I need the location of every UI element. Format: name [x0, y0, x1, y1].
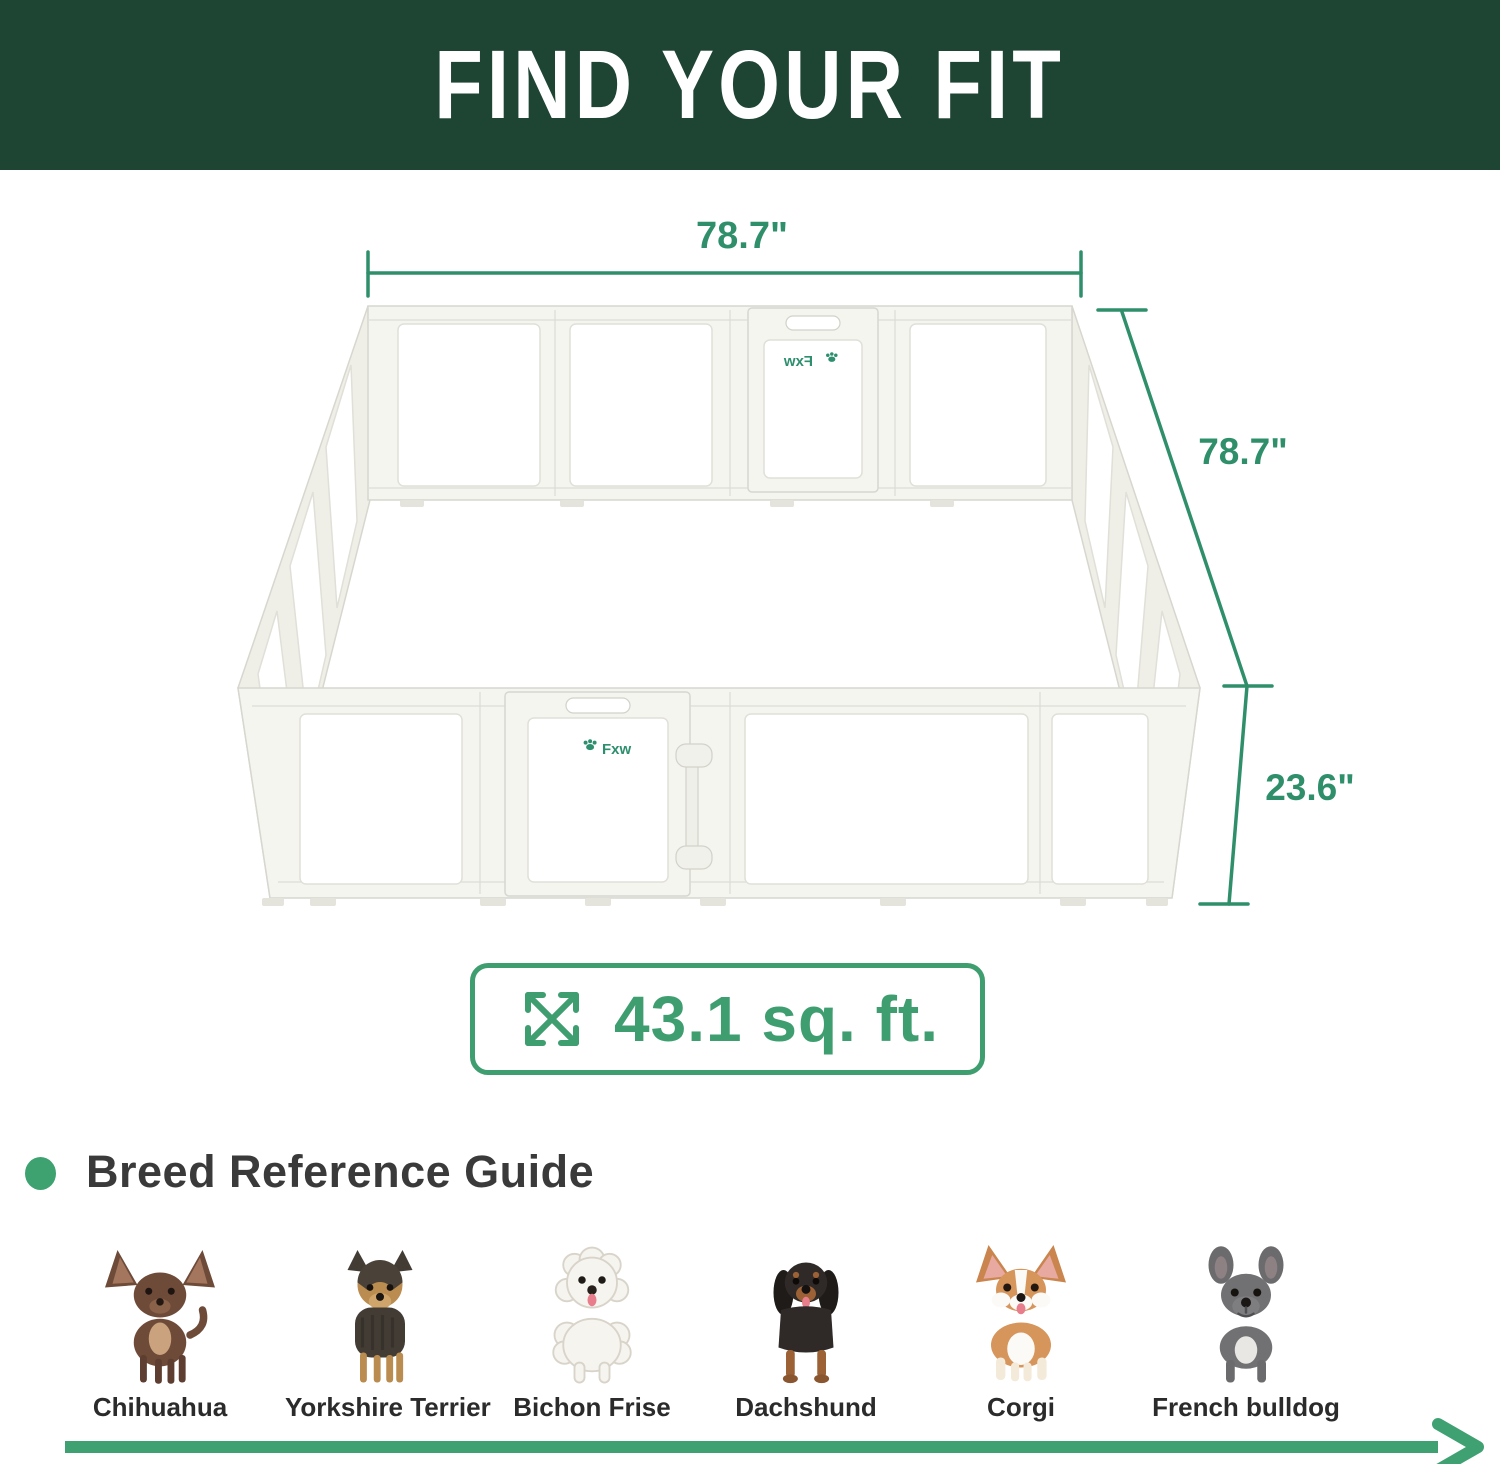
bichon-frise-illustration — [517, 1240, 667, 1390]
front-door-latch-knob-bottom — [676, 846, 712, 869]
area-badge: 43.1 sq. ft. — [470, 963, 985, 1075]
height-label: 23.6" — [1265, 767, 1355, 808]
breed-item-yorkshire-terrier: Yorkshire Terrier — [285, 1240, 475, 1423]
breed-item-bichon-frise: Bichon Frise — [497, 1240, 687, 1423]
breed-label: Bichon Frise — [497, 1392, 687, 1423]
breed-guide-heading: Breed Reference Guide — [86, 1146, 594, 1198]
svg-text:Fxw: Fxw — [783, 353, 813, 370]
back-door-handle-slot — [786, 316, 840, 330]
breed-label: French bulldog — [1151, 1392, 1341, 1423]
breed-item-corgi: Corgi — [926, 1240, 1116, 1423]
breed-label: Dachshund — [711, 1392, 901, 1423]
breed-guide-title: Breed Reference Guide — [86, 1146, 594, 1198]
arrow-head-icon — [1438, 1424, 1478, 1464]
playpen-back-door: Fxw — [748, 308, 878, 492]
french-bulldog-illustration — [1171, 1240, 1321, 1390]
dachshund-illustration — [731, 1240, 881, 1390]
breed-size-arrow — [65, 1424, 1478, 1464]
section-bullet-dot — [25, 1157, 56, 1190]
front-door-latch-bar — [686, 752, 698, 860]
dimension-width: 78.7" — [368, 215, 1081, 296]
dimension-height: 23.6" — [1200, 686, 1355, 904]
breed-label: Corgi — [926, 1392, 1116, 1423]
depth-label: 78.7" — [1198, 431, 1288, 472]
chihuahua-illustration — [85, 1240, 235, 1390]
svg-text:Fxw: Fxw — [602, 741, 632, 758]
width-label: 78.7" — [696, 215, 788, 257]
breed-item-french-bulldog: French bulldog — [1151, 1240, 1341, 1423]
playpen-back-wall: Fxw — [368, 306, 1072, 507]
playpen-front-door: Fxw — [505, 692, 712, 896]
corgi-illustration — [946, 1240, 1096, 1390]
breed-label: Yorkshire Terrier — [285, 1392, 475, 1423]
playpen-front-wall: Fxw — [238, 688, 1200, 906]
yorkshire-terrier-illustration — [305, 1240, 455, 1390]
breed-item-chihuahua: Chihuahua — [65, 1240, 255, 1423]
breed-item-dachshund: Dachshund — [711, 1240, 901, 1423]
area-value: 43.1 sq. ft. — [614, 982, 939, 1056]
breed-label: Chihuahua — [65, 1392, 255, 1423]
expand-arrows-icon — [516, 983, 588, 1055]
front-door-latch-knob-top — [676, 744, 712, 767]
front-door-handle-slot — [566, 698, 630, 713]
